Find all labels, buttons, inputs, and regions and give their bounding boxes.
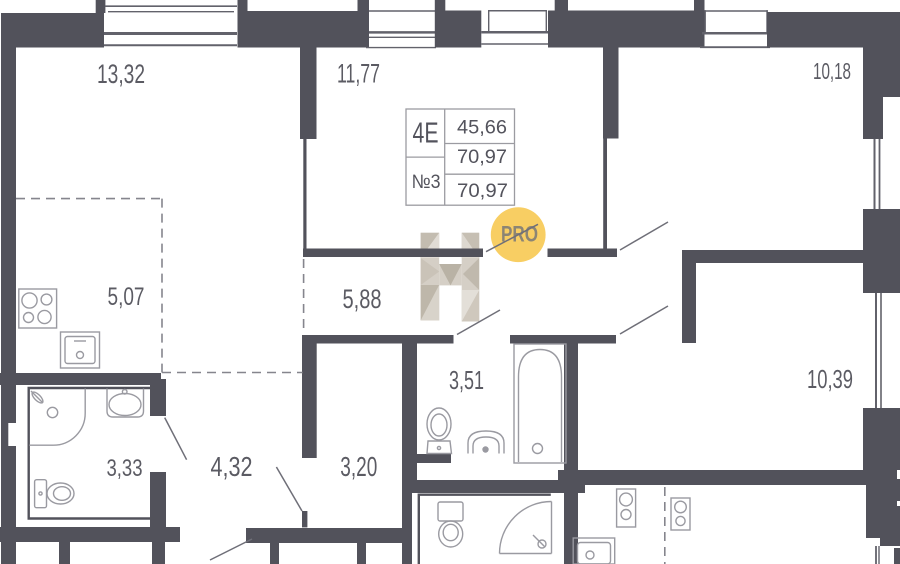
svg-text:4,32: 4,32 (211, 451, 253, 482)
svg-text:11,77: 11,77 (337, 59, 380, 89)
svg-text:5,88: 5,88 (343, 284, 382, 314)
svg-text:70,97: 70,97 (457, 180, 508, 202)
svg-text:5,07: 5,07 (108, 283, 145, 311)
svg-text:70,97: 70,97 (457, 146, 507, 168)
svg-text:13,32: 13,32 (97, 59, 145, 89)
svg-text:10,39: 10,39 (807, 364, 853, 394)
svg-text:3,51: 3,51 (449, 365, 484, 395)
svg-text:3,33: 3,33 (107, 455, 143, 482)
svg-text:№3: №3 (412, 171, 441, 193)
svg-text:3,20: 3,20 (340, 451, 377, 482)
svg-text:10,18: 10,18 (813, 58, 851, 84)
svg-text:45,66: 45,66 (457, 117, 507, 139)
svg-text:4Е: 4Е (413, 118, 439, 150)
